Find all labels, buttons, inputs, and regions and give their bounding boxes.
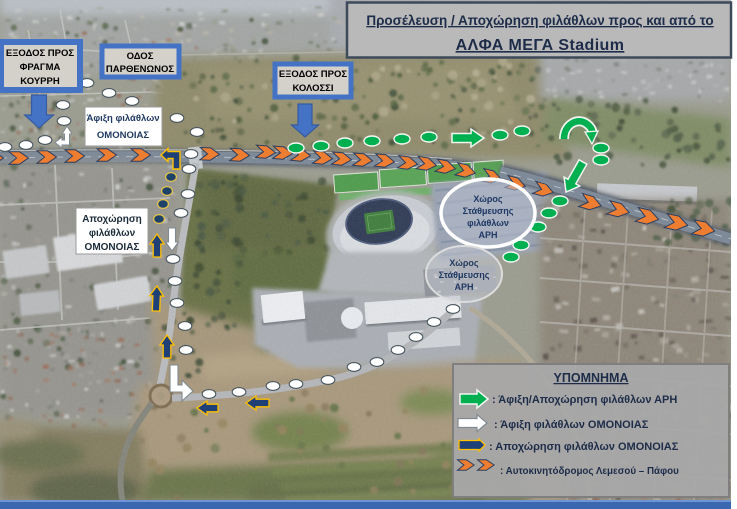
svg-text:Χώρος: Χώρος bbox=[449, 258, 479, 268]
svg-text:Χώρος: Χώρος bbox=[473, 194, 503, 204]
svg-text:ΑΡΗ: ΑΡΗ bbox=[478, 230, 497, 240]
svg-text:ΑΡΗ: ΑΡΗ bbox=[454, 282, 473, 292]
svg-text:Προσέλευση / Αποχώρηση φιλάθλω: Προσέλευση / Αποχώρηση φιλάθλων προς και… bbox=[366, 13, 713, 28]
svg-text:ΚΟΛΟΣΣΙ: ΚΟΛΟΣΣΙ bbox=[292, 83, 333, 94]
svg-text:φιλάθλων: φιλάθλων bbox=[89, 228, 136, 239]
svg-text:ΠΑΡΘΕΝΩΝΟΣ: ΠΑΡΘΕΝΩΝΟΣ bbox=[106, 64, 175, 75]
svg-text:Στάθμευσης: Στάθμευσης bbox=[439, 270, 490, 280]
svg-text:: Άφιξη φιλάθλων ΟΜΟΝΟΙΑΣ: : Άφιξη φιλάθλων ΟΜΟΝΟΙΑΣ bbox=[494, 419, 649, 431]
svg-text:Άφιξη φιλάθλων: Άφιξη φιλάθλων bbox=[86, 113, 159, 124]
svg-text:ΟΜΟΝΟΙΑΣ: ΟΜΟΝΟΙΑΣ bbox=[97, 130, 149, 141]
svg-text:Στάθμευσης: Στάθμευσης bbox=[463, 206, 514, 216]
svg-text:: Αυτοκινητόδρομος Λεμεσού –: : Αυτοκινητόδρομος Λεμεσού – Πάφου bbox=[500, 466, 679, 477]
svg-text:ΕΞΟΔΟΣ ΠΡΟΣ: ΕΞΟΔΟΣ ΠΡΟΣ bbox=[279, 69, 347, 80]
svg-text:φιλάθλων: φιλάθλων bbox=[467, 218, 509, 228]
svg-text:ΥΠΟΜΝΗΜΑ: ΥΠΟΜΝΗΜΑ bbox=[554, 371, 629, 385]
svg-text:ΟΜΟΝΟΙΑΣ: ΟΜΟΝΟΙΑΣ bbox=[85, 242, 140, 253]
svg-text:ΟΔΟΣ: ΟΔΟΣ bbox=[127, 51, 154, 62]
svg-text:ΕΞΟΔΟΣ ΠΡΟΣ: ΕΞΟΔΟΣ ΠΡΟΣ bbox=[6, 48, 74, 59]
svg-text:: Αποχώρηση φιλάθλων ΟΜΟΝΟΙΑΣ: : Αποχώρηση φιλάθλων ΟΜΟΝΟΙΑΣ bbox=[489, 441, 679, 453]
svg-text:ΚΟΥΡΡΗ: ΚΟΥΡΡΗ bbox=[20, 76, 60, 87]
svg-text:Αποχώρηση: Αποχώρηση bbox=[82, 214, 142, 225]
svg-text:ΑΛΦΑ ΜΕΓΑ Stadium: ΑΛΦΑ ΜΕΓΑ Stadium bbox=[456, 37, 625, 54]
svg-text:ΦΡΑΓΜΑ: ΦΡΑΓΜΑ bbox=[20, 62, 61, 73]
svg-text:: Άφιξη/Αποχώρηση φιλάθλων Α: : Άφιξη/Αποχώρηση φιλάθλων ΑΡΗ bbox=[492, 394, 677, 406]
